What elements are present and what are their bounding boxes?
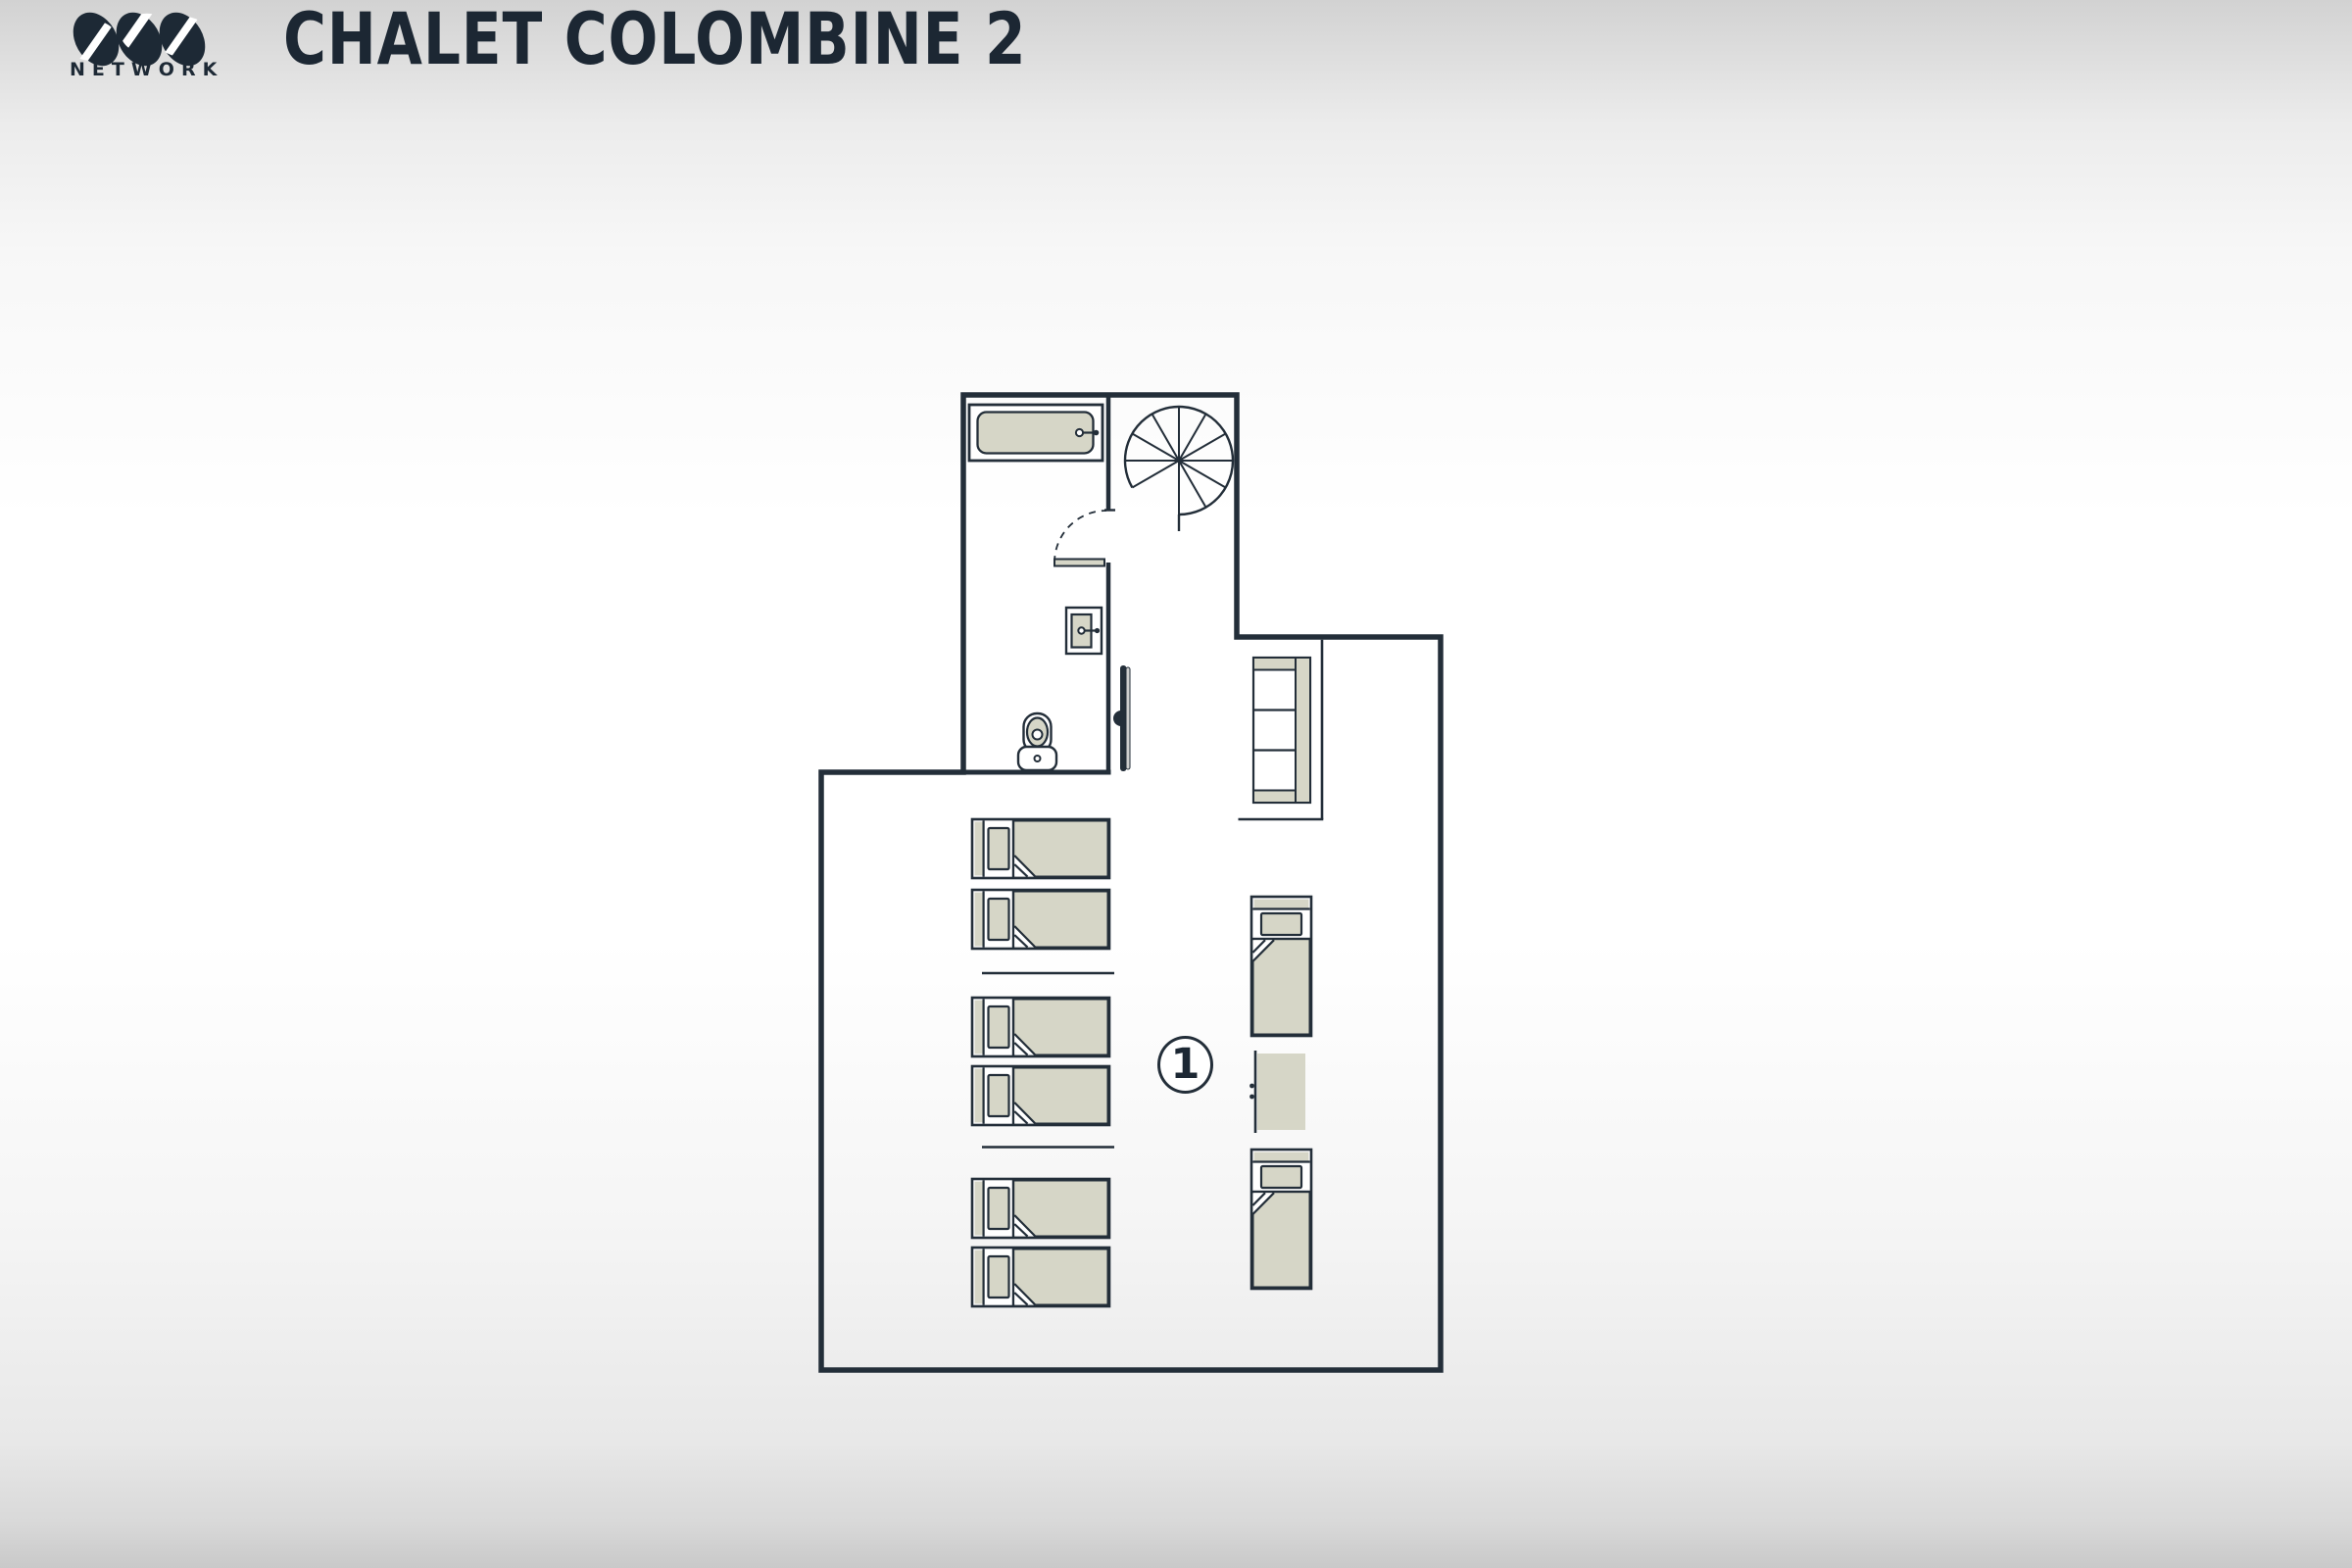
bathtub-icon [969,405,1102,461]
single-bed-icon [972,1248,1109,1306]
door-swing-icon [1054,511,1106,566]
single-bed-icon [972,1066,1109,1125]
single-bed-icon [972,998,1109,1056]
single-bed-icon [972,890,1109,949]
wall-tv-icon [1113,665,1130,771]
chest-of-drawers-icon [1249,1051,1305,1133]
room-number-label: 1 [1171,1040,1200,1089]
single-bed-icon [1251,1150,1311,1289]
toilet-icon [1018,713,1056,770]
single-bed-icon [972,1179,1109,1238]
room-number-badge: 1 [1157,1036,1213,1094]
washbasin-icon [1066,608,1102,654]
single-bed-icon [1251,897,1311,1036]
sofa-icon [1253,658,1310,803]
floor-plan [0,0,2352,1568]
single-bed-icon [972,819,1109,878]
walls [821,393,1441,1371]
spiral-staircase-icon [1125,407,1233,531]
